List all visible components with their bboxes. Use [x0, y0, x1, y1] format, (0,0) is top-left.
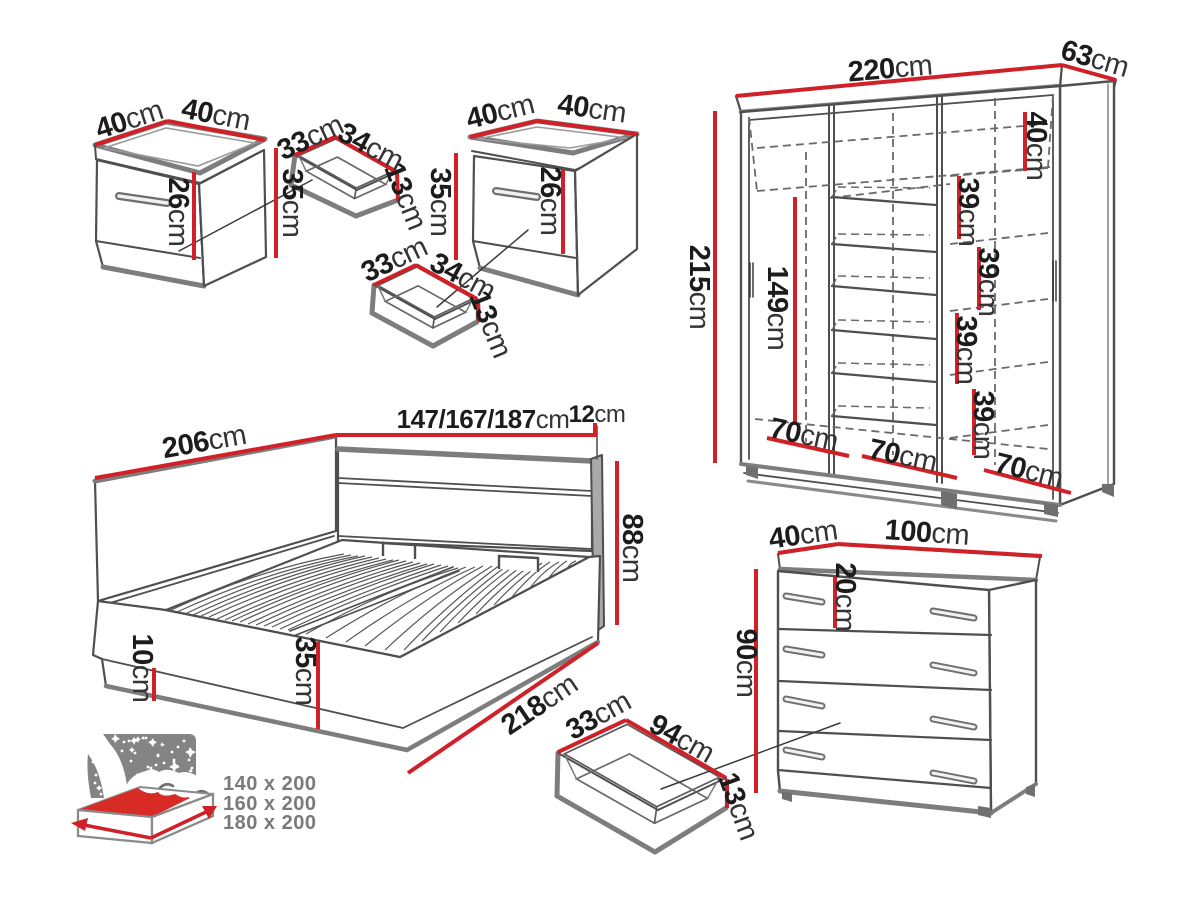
svg-text:140 x 200: 140 x 200 — [223, 773, 316, 795]
svg-text:35cm: 35cm — [276, 169, 308, 238]
svg-text:90cm: 90cm — [730, 629, 762, 698]
svg-text:88cm: 88cm — [616, 514, 648, 583]
svg-text:35cm: 35cm — [424, 168, 456, 237]
svg-text:149cm: 149cm — [761, 266, 793, 351]
svg-text:39cm: 39cm — [950, 316, 982, 385]
svg-text:100cm: 100cm — [884, 514, 971, 552]
svg-text:10cm: 10cm — [126, 634, 158, 703]
svg-text:180 x 200: 180 x 200 — [223, 812, 316, 834]
svg-text:20cm: 20cm — [829, 563, 861, 632]
svg-text:35cm: 35cm — [289, 637, 321, 706]
svg-text:39cm: 39cm — [972, 248, 1004, 317]
svg-text:12cm: 12cm — [569, 401, 626, 428]
svg-text:40cm: 40cm — [1020, 112, 1052, 181]
svg-text:147/167/187cm: 147/167/187cm — [397, 404, 570, 434]
svg-text:26cm: 26cm — [162, 178, 194, 247]
svg-text:215cm: 215cm — [683, 245, 715, 330]
svg-text:39cm: 39cm — [952, 178, 984, 247]
svg-text:39cm: 39cm — [967, 391, 999, 460]
svg-text:26cm: 26cm — [534, 167, 566, 236]
